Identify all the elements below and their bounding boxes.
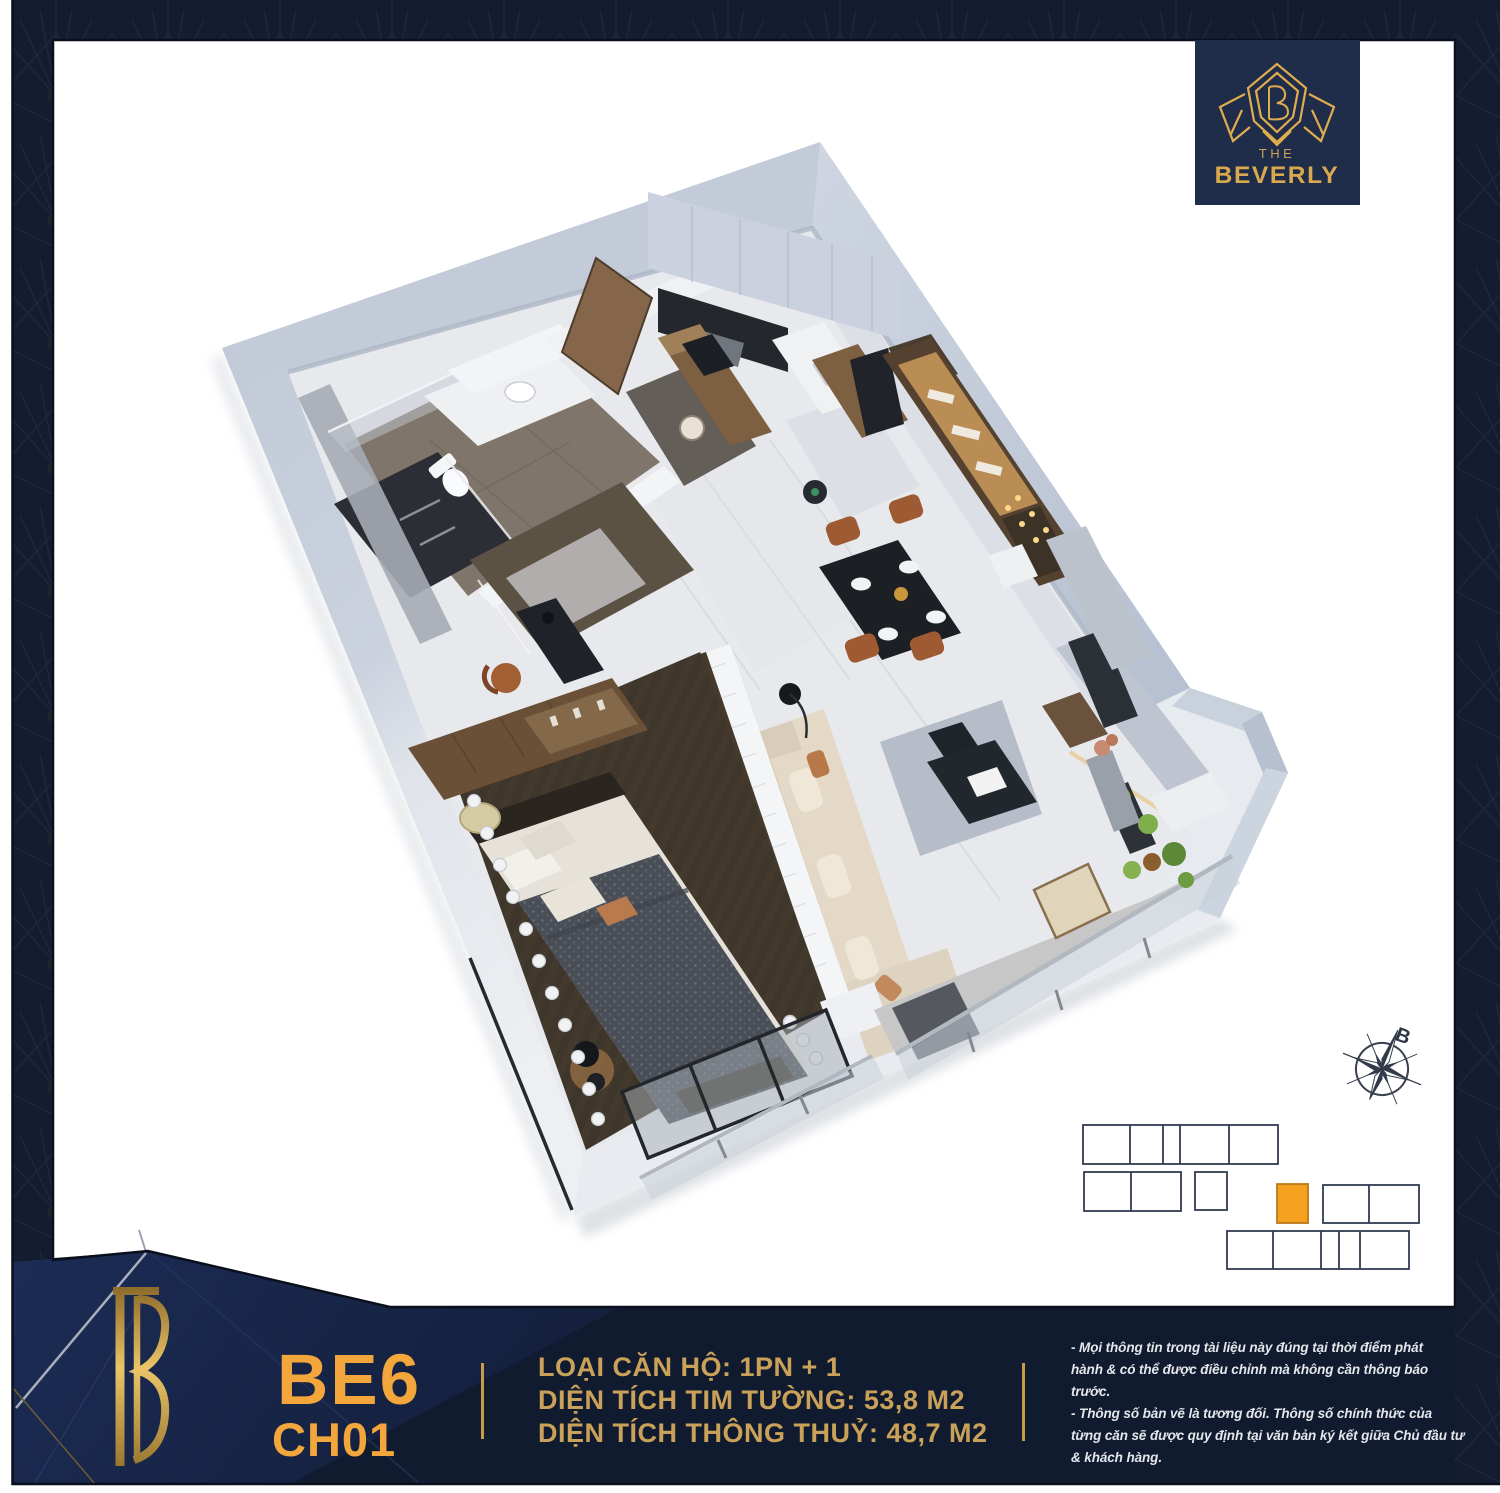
- svg-text:từng căn sẽ được quy định tại: từng căn sẽ được quy định tại văn bản ký…: [1071, 1428, 1466, 1443]
- svg-text:CH01: CH01: [272, 1413, 396, 1466]
- svg-text:THE: THE: [1259, 146, 1296, 161]
- svg-text:trước.: trước.: [1071, 1384, 1110, 1399]
- svg-text:DIỆN TÍCH TIM TƯỜNG: 53,8 M2: DIỆN TÍCH TIM TƯỜNG: 53,8 M2: [538, 1384, 965, 1415]
- svg-text:hành & có thể được điều chỉnh: hành & có thể được điều chỉnh mà không c…: [1071, 1362, 1428, 1377]
- svg-text:BE6: BE6: [277, 1341, 421, 1420]
- svg-text:& khách hàng.: & khách hàng.: [1071, 1450, 1162, 1465]
- svg-text:BEVERLY: BEVERLY: [1215, 162, 1340, 189]
- svg-text:- Thông số bản vẽ là tương đối: - Thông số bản vẽ là tương đối. Thông số…: [1071, 1406, 1433, 1421]
- svg-text:DIỆN TÍCH THÔNG THUỶ: 48,7 M2: DIỆN TÍCH THÔNG THUỶ: 48,7 M2: [538, 1416, 988, 1448]
- svg-text:- Mọi thông tin trong tài liệu: - Mọi thông tin trong tài liệu này đúng …: [1071, 1340, 1424, 1355]
- svg-text:LOẠI CĂN HỘ: 1PN + 1: LOẠI CĂN HỘ: 1PN + 1: [538, 1351, 841, 1382]
